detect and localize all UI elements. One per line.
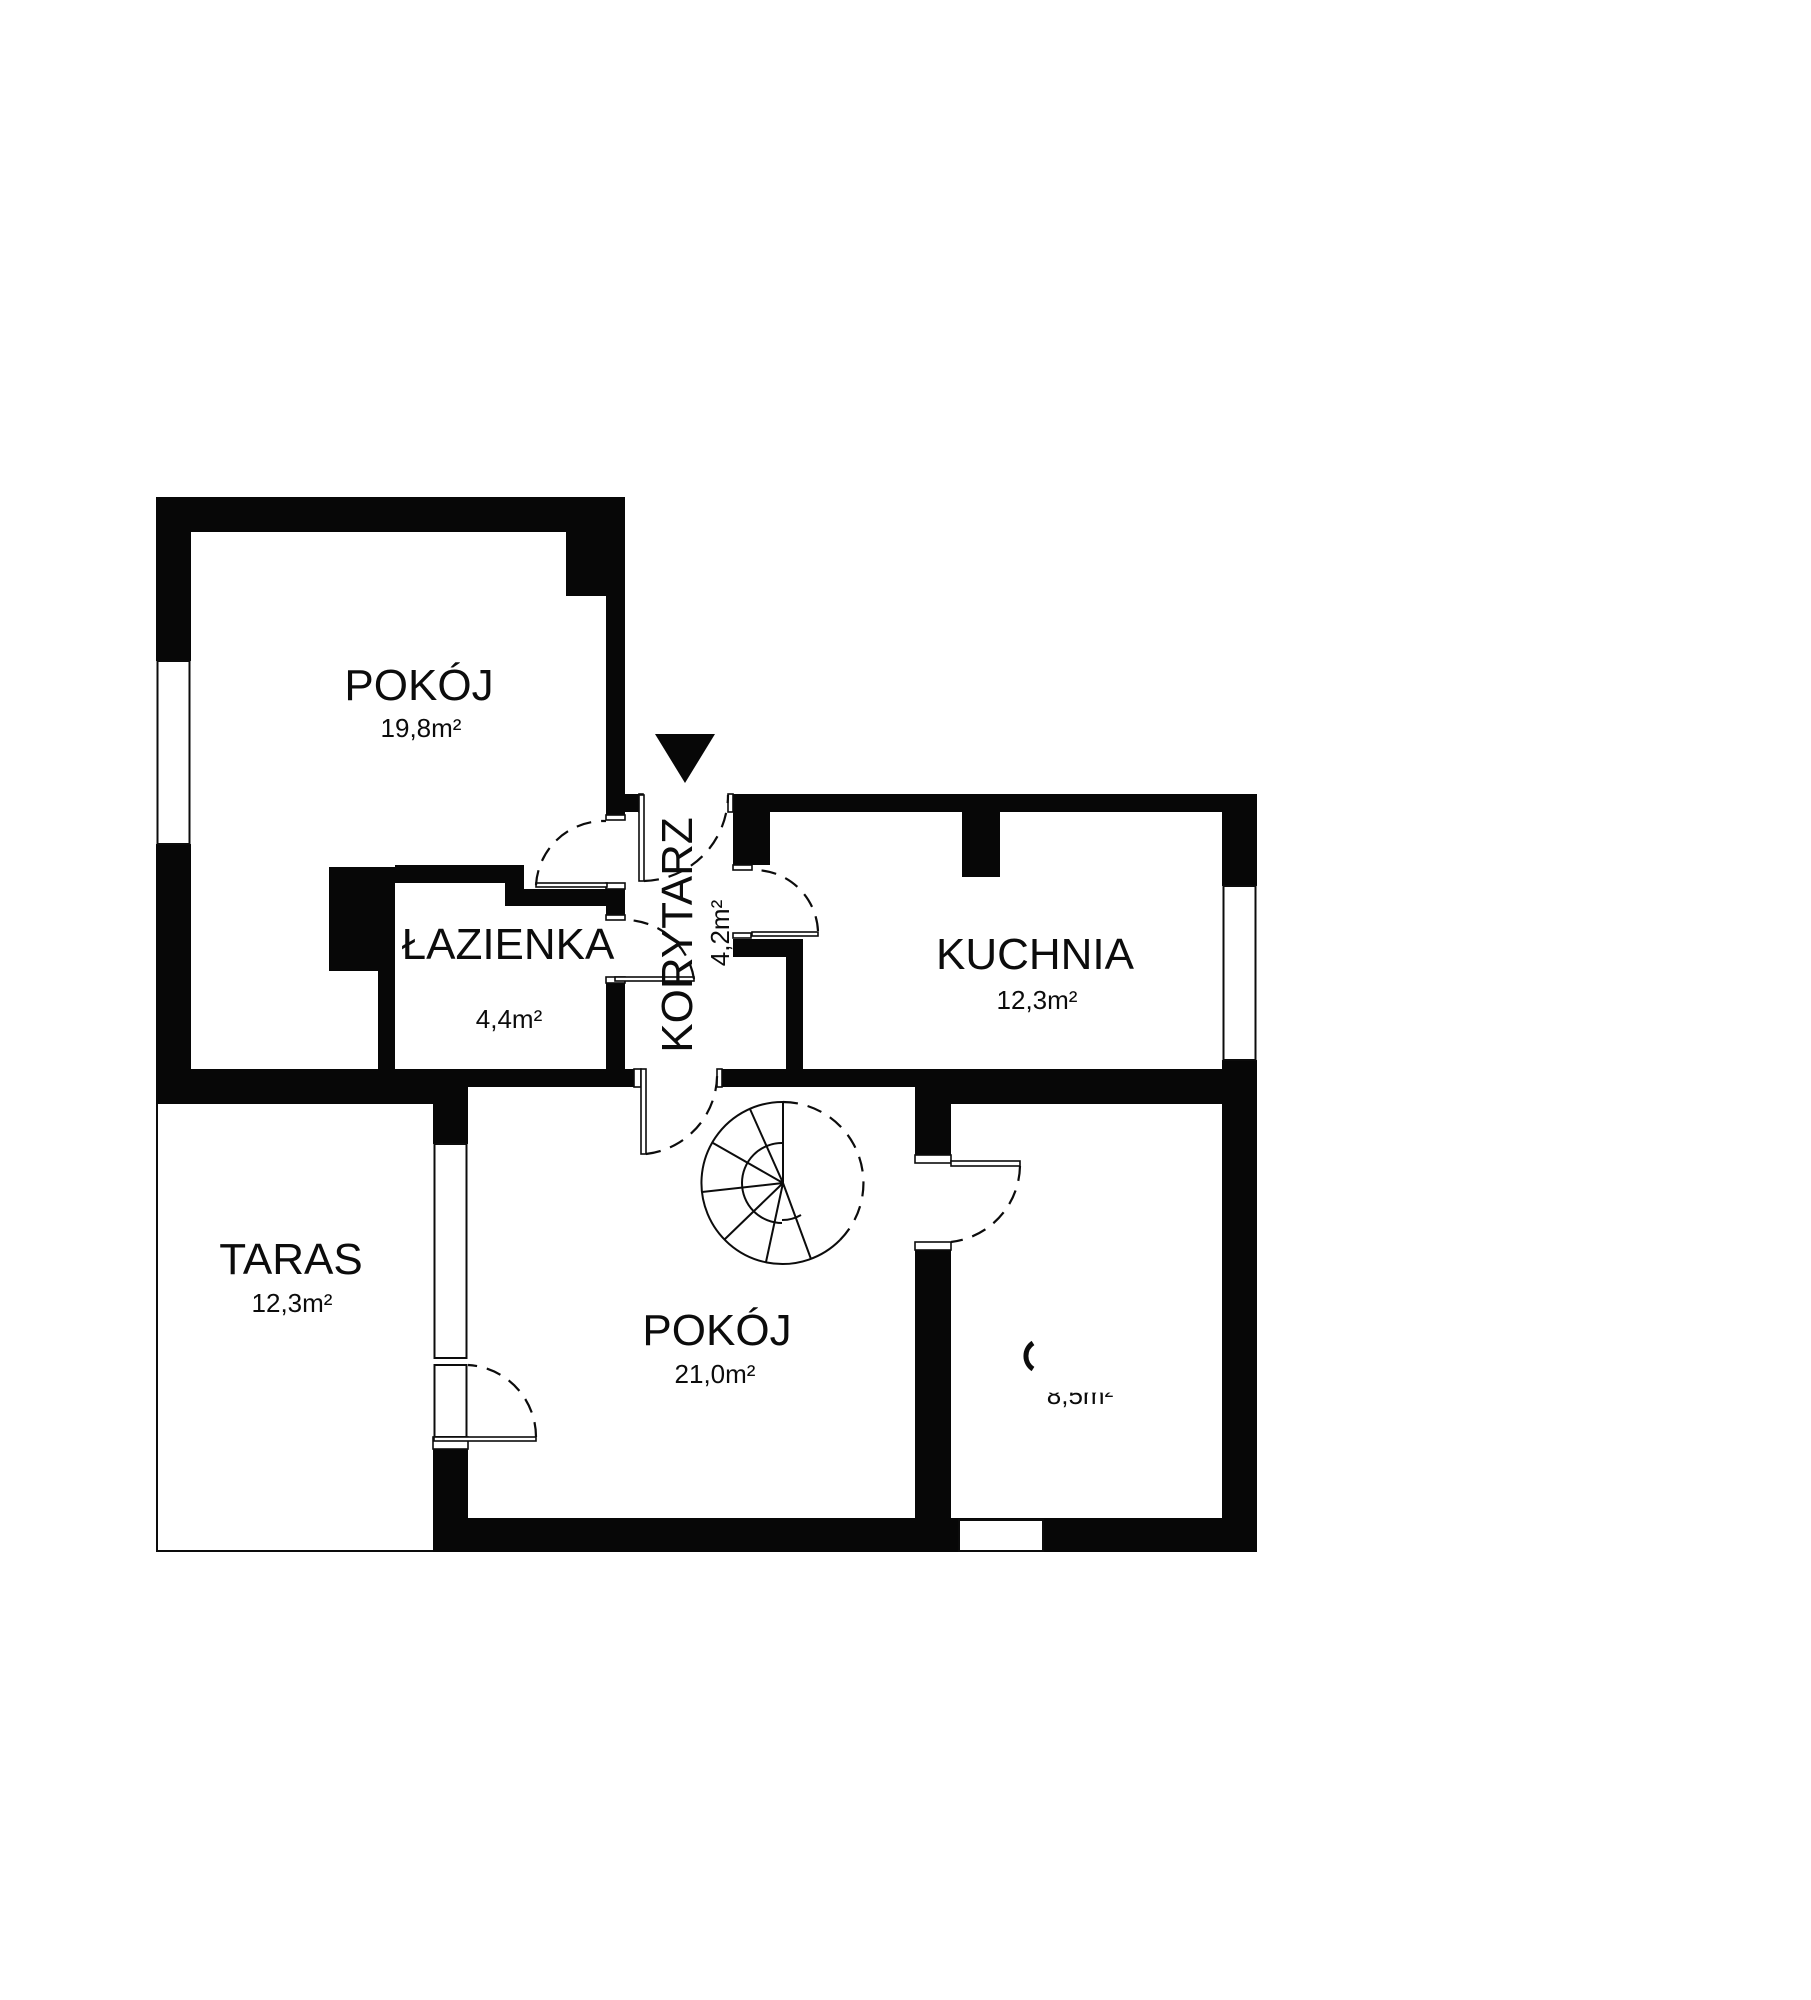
svg-text:KORYTARZ: KORYTARZ [653, 817, 702, 1053]
svg-text:21,0m²: 21,0m² [675, 1359, 756, 1389]
svg-text:4,4m²: 4,4m² [476, 1004, 543, 1034]
svg-text:19,8m²: 19,8m² [381, 713, 462, 743]
svg-text:KUCHNIA: KUCHNIA [936, 930, 1135, 979]
svg-text:ŁAZIENKA: ŁAZIENKA [402, 920, 615, 969]
svg-text:TARAS: TARAS [219, 1235, 362, 1284]
svg-text:12,3m²: 12,3m² [997, 985, 1078, 1015]
svg-text:12,3m²: 12,3m² [252, 1288, 333, 1318]
svg-text:4,2m²: 4,2m² [705, 899, 735, 966]
svg-text:POKÓJ: POKÓJ [642, 1306, 791, 1355]
svg-text:POKÓJ: POKÓJ [344, 661, 493, 710]
